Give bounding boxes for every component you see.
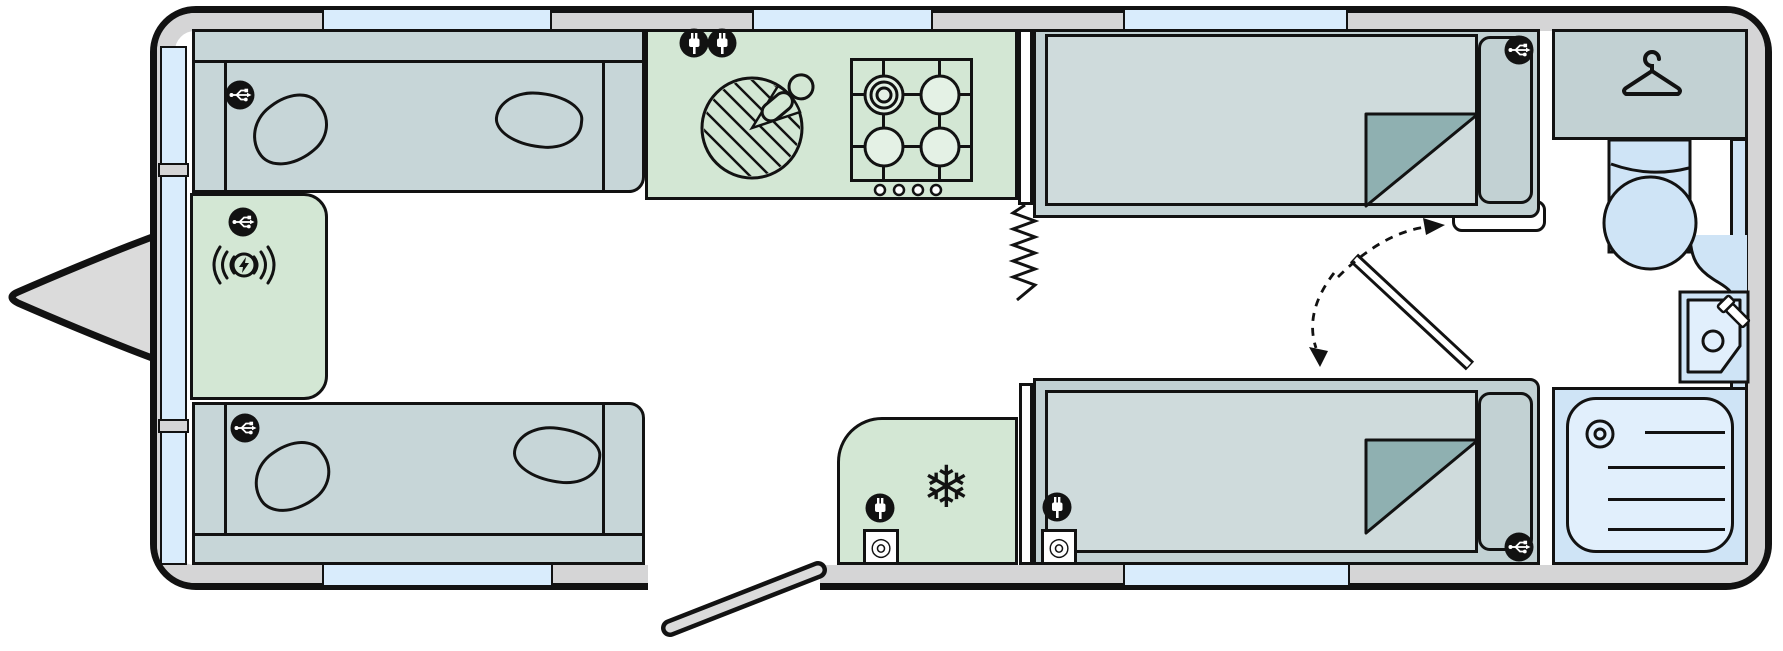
top-bed-folded-corner [1358,106,1484,212]
usb-icon [1504,532,1534,562]
usb-icon [228,207,258,237]
aerial-socket-icon: ◎ [1041,529,1077,565]
concertina-divider [1002,203,1048,307]
window-front-strip [160,46,187,565]
plug-icon [1042,492,1072,522]
usb-icon [1504,35,1534,65]
hanger-icon [1615,45,1687,105]
window-bottom-1 [322,562,553,587]
plug-icon [865,493,895,523]
hob-control-knobs [872,183,952,199]
plug-icon [707,28,737,58]
plug-icon [679,28,709,58]
corner-basin [1676,288,1754,388]
door-swing-arrows [1290,215,1460,375]
kitchen-bedroom-wall [1018,29,1033,205]
shower-grate-line [1608,498,1725,501]
usb-icon [230,413,260,443]
front-wall-separator-2 [158,419,189,433]
aerial-socket-icon: ◎ [863,529,899,565]
fridge-bed-wall [1019,383,1033,565]
front-chest [190,193,328,400]
bottom-sofa-left-armrest-line [224,402,227,533]
caravan-floorplan: ❄ ◎ ◎ [0,0,1783,651]
snowflake-icon: ❄ [922,458,971,516]
front-wall-separator-1 [158,163,189,177]
kitchen-sink [682,58,822,198]
shower-grate-line [1608,466,1725,469]
bottom-sofa-right-armrest-line [602,402,605,533]
top-sofa-backrest-line [194,60,643,63]
bottom-bed-foot-shelf [1478,392,1533,551]
window-bottom-2 [1123,562,1350,587]
shower-grate-line [1608,528,1725,531]
wireless-charging-icon [204,241,284,289]
usb-icon [225,80,255,110]
bottom-bed-folded-corner [1358,432,1484,538]
shower-drain [1584,418,1618,452]
hitch-a-frame [0,215,175,385]
entrance-door-open [630,548,840,648]
hob-burners [850,58,973,182]
top-sofa-right-armrest-line [602,62,605,193]
shower-grate-line [1645,431,1725,434]
bottom-sofa-backrest-line [194,533,643,536]
